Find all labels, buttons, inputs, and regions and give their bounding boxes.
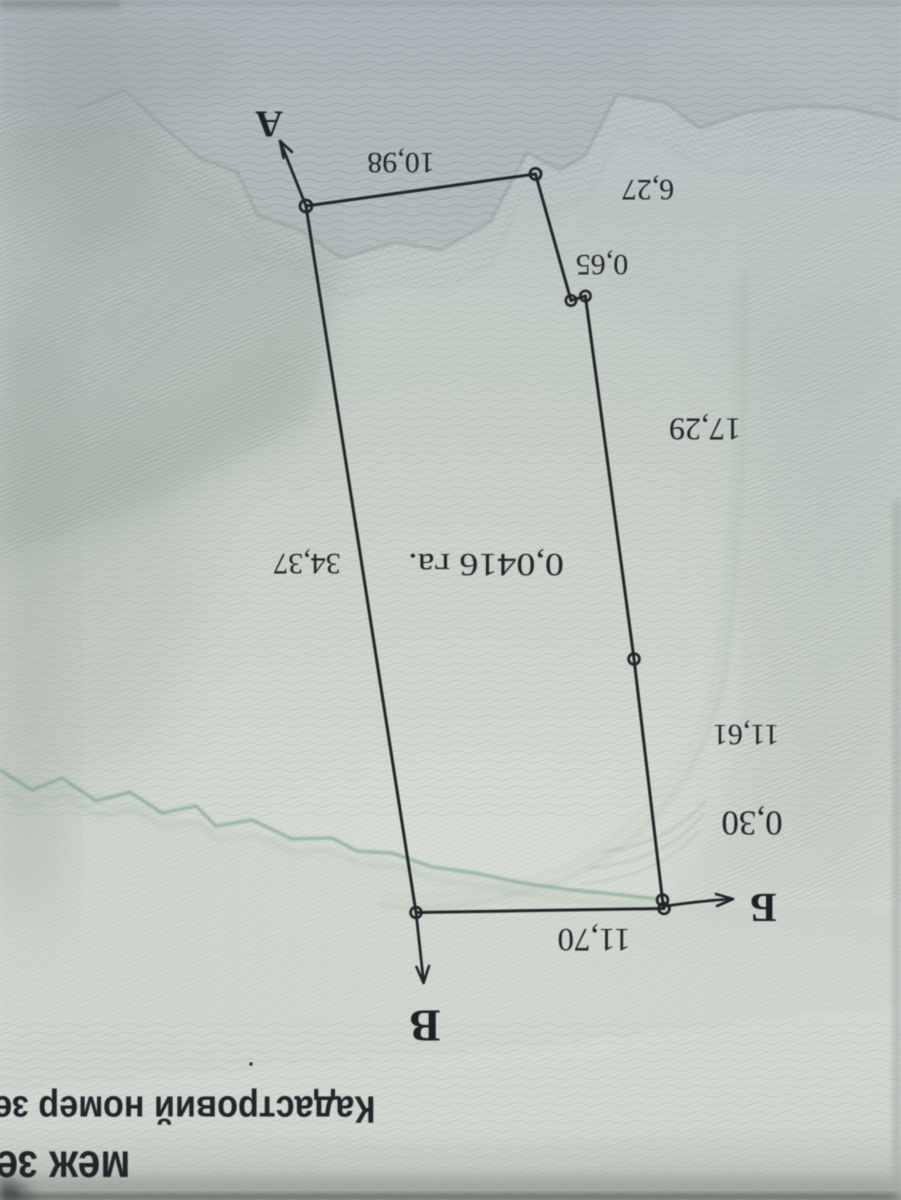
svg-text:0,30: 0,30	[721, 803, 782, 842]
svg-text:0,65: 0,65	[576, 248, 629, 281]
svg-text:34,37: 34,37	[273, 547, 341, 580]
svg-text:А: А	[255, 102, 283, 144]
svg-text:11,70: 11,70	[557, 921, 630, 957]
svg-text:6,27: 6,27	[622, 173, 675, 206]
svg-text:В: В	[410, 1000, 441, 1051]
svg-text:11,61: 11,61	[713, 718, 779, 751]
svg-text:10,98: 10,98	[367, 146, 435, 179]
svg-text:0,0416 га.: 0,0416 га.	[408, 547, 564, 584]
svg-text:17,29: 17,29	[669, 411, 741, 447]
svg-text:Б: Б	[749, 885, 776, 931]
svg-text:меж зе: меж зе	[0, 1141, 130, 1194]
svg-text:Кадастровий номер зем: Кадастровий номер зем	[0, 1088, 376, 1131]
